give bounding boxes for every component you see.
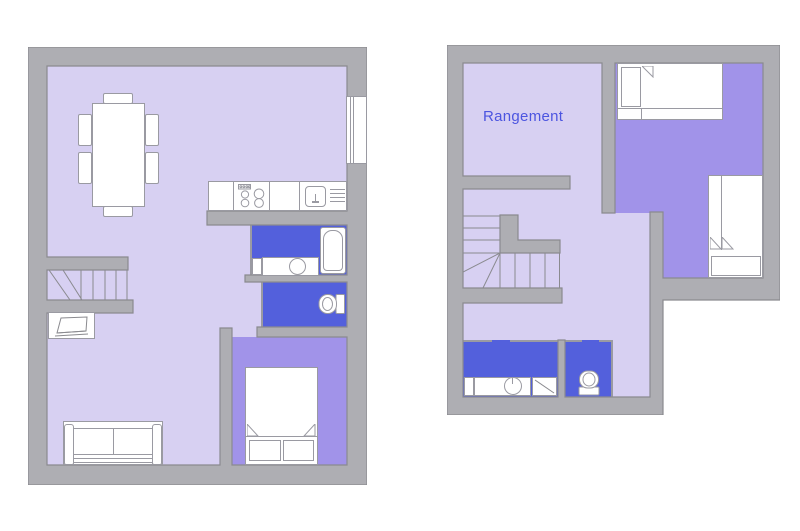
sofa-cushion [113,428,153,455]
sofa-cushion [73,428,114,455]
stove [238,184,268,208]
dining-table [92,103,145,207]
bathroom-cabinet [464,377,474,396]
chair [78,114,92,146]
blanket-fold [303,424,316,437]
chair [145,152,159,184]
washbasin [504,377,522,395]
drainboard-line [330,197,345,198]
blanket-line [618,108,722,109]
kitchen-counter [208,181,347,211]
bathroom-wall-line [510,340,558,342]
bed-divider [641,108,642,120]
window-frame-line [350,97,351,163]
chair [78,152,92,184]
pillow [283,440,314,461]
wc-partition [261,282,263,327]
upper-floor-plan: Rangement [447,45,780,415]
room-label-rangement: Rangement [483,108,563,125]
counter-divider [299,182,300,210]
sofa-front-line [73,458,153,459]
faucet-icon [512,378,513,384]
pillow [621,67,641,107]
wc-wall-line [599,340,612,342]
chair [103,93,133,104]
armchair [48,312,95,339]
window-frame-line [353,97,354,163]
vanity-counter [474,377,531,396]
faucet-icon [312,201,319,203]
wc-partition [611,340,613,397]
shower-diagonal [533,378,556,395]
blanket-fold [710,237,734,250]
single-bed [617,63,723,120]
chair [103,206,133,217]
counter-divider [233,182,234,210]
drainboard-line [330,201,345,202]
door-leaf [252,258,262,275]
sofa [63,421,163,465]
drainboard-line [330,189,345,190]
sofa-armrest [152,424,162,465]
shower [532,377,557,396]
floorplan-image: Rangement [0,0,800,531]
ground-floor-plan [28,47,367,485]
bathroom-wall-line [463,340,492,342]
blanket-fold [247,424,260,437]
toilet [576,370,602,397]
counter-divider [269,182,270,210]
armchair-sketch [49,313,94,338]
sofa-front-line [73,462,153,463]
bathtub [320,227,346,274]
bathtub-basin [323,230,343,271]
drainboard-line [330,193,345,194]
pillow [711,256,761,276]
pillow [249,440,281,461]
chair [145,114,159,146]
wc-wall-line [565,340,582,342]
washbasin [289,258,306,275]
staircase [47,270,128,300]
window [346,96,367,164]
staircase [463,212,562,303]
toilet [318,293,346,315]
single-bed [708,175,763,278]
blanket-fold [642,66,654,78]
double-bed [245,367,318,465]
